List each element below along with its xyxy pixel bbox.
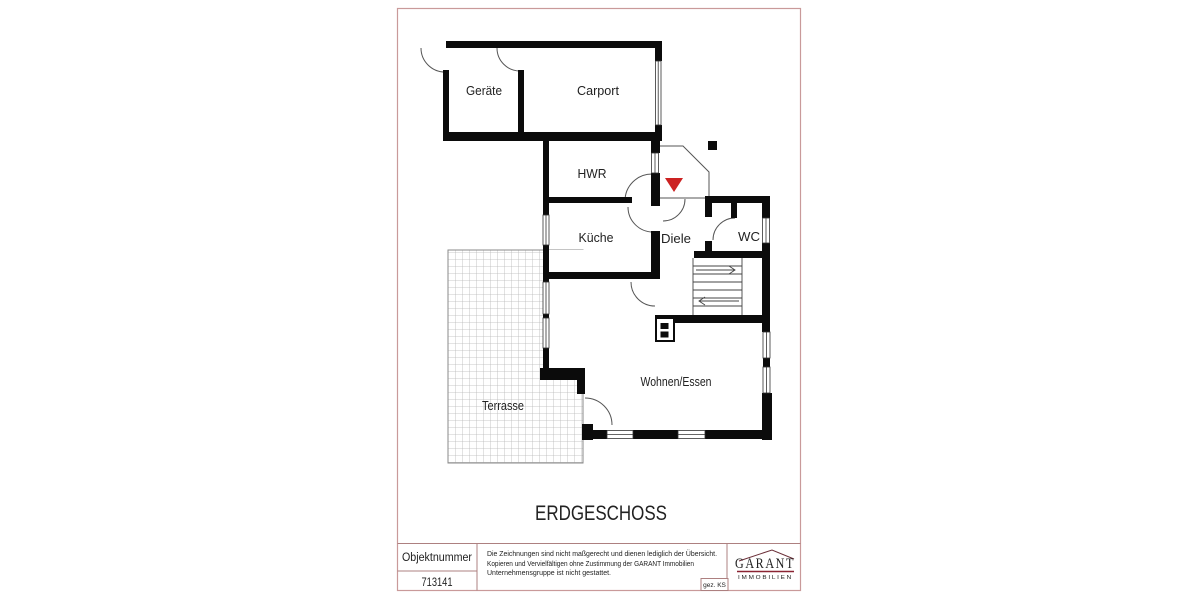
- fireplace: [656, 318, 674, 341]
- floor-title: ERDGESCHOSS: [535, 502, 667, 525]
- window-entrance-sidelight: [652, 153, 659, 173]
- window-wohnen-left-2: [543, 318, 549, 348]
- title-block-text: Objektnummer 713141 Die Zeichnungen sind…: [402, 550, 727, 589]
- room-label-kueche: Küche: [579, 231, 614, 245]
- object-number-label: Objektnummer: [402, 552, 472, 564]
- room-label-diele: Diele: [661, 232, 691, 246]
- door-arc-geraete-exterior: [421, 48, 445, 72]
- window-kueche: [543, 215, 549, 245]
- window-wohnen-bottom-2: [678, 431, 705, 439]
- staircase: [693, 258, 742, 315]
- room-label-carport: Carport: [577, 84, 620, 98]
- disclaimer-line-3: Unternehmensgruppe ist nicht gestattet.: [487, 570, 611, 577]
- logo-name: GARANT: [735, 556, 795, 572]
- room-label-terrasse: Terrasse: [482, 399, 524, 413]
- door-arc-geraete-interior: [497, 48, 520, 71]
- window-wohnen-right-2: [763, 367, 770, 393]
- room-label-wohnen-essen: Wohnen/Essen: [641, 375, 712, 389]
- room-label-hwr: HWR: [578, 167, 607, 181]
- door-arc-hwr: [625, 174, 652, 201]
- room-label-wc: WC: [738, 230, 760, 244]
- terrace: [448, 250, 585, 463]
- door-arc-kueche: [628, 207, 653, 232]
- garant-logo: GARANT IMMOBILIEN: [735, 550, 795, 581]
- window-carport-open-side: [656, 61, 662, 125]
- object-number-value: 713141: [422, 577, 453, 589]
- signed-by: gez. KS: [703, 582, 726, 589]
- disclaimer-line-1: Die Zeichnungen sind nicht maßgerecht un…: [487, 550, 717, 558]
- window-wohnen-right-1: [763, 332, 770, 358]
- entrance-porch: [658, 141, 709, 198]
- porch-outline: [658, 141, 709, 196]
- page: Geräte Carport HWR Küche Diele WC Wohnen…: [0, 0, 1200, 600]
- logo-subtitle: IMMOBILIEN: [738, 575, 793, 581]
- door-arc-entrance: [663, 199, 685, 221]
- floor-plan-svg: Geräte Carport HWR Küche Diele WC Wohnen…: [0, 0, 1200, 600]
- disclaimer-line-2: Kopieren und Vervielfältigen ohne Zustim…: [487, 561, 694, 568]
- window-wc: [763, 218, 770, 243]
- porch-pillar: [708, 141, 717, 150]
- door-arc-wohnen: [631, 282, 655, 306]
- entrance-marker-icon: [665, 178, 683, 192]
- door-arc-terrasse: [585, 398, 612, 425]
- stair-up-arrow: [696, 266, 735, 274]
- window-wohnen-bottom-1: [607, 431, 633, 439]
- room-label-geraete: Geräte: [466, 84, 502, 98]
- window-wohnen-left-1: [543, 282, 549, 314]
- door-arc-wc: [713, 218, 735, 240]
